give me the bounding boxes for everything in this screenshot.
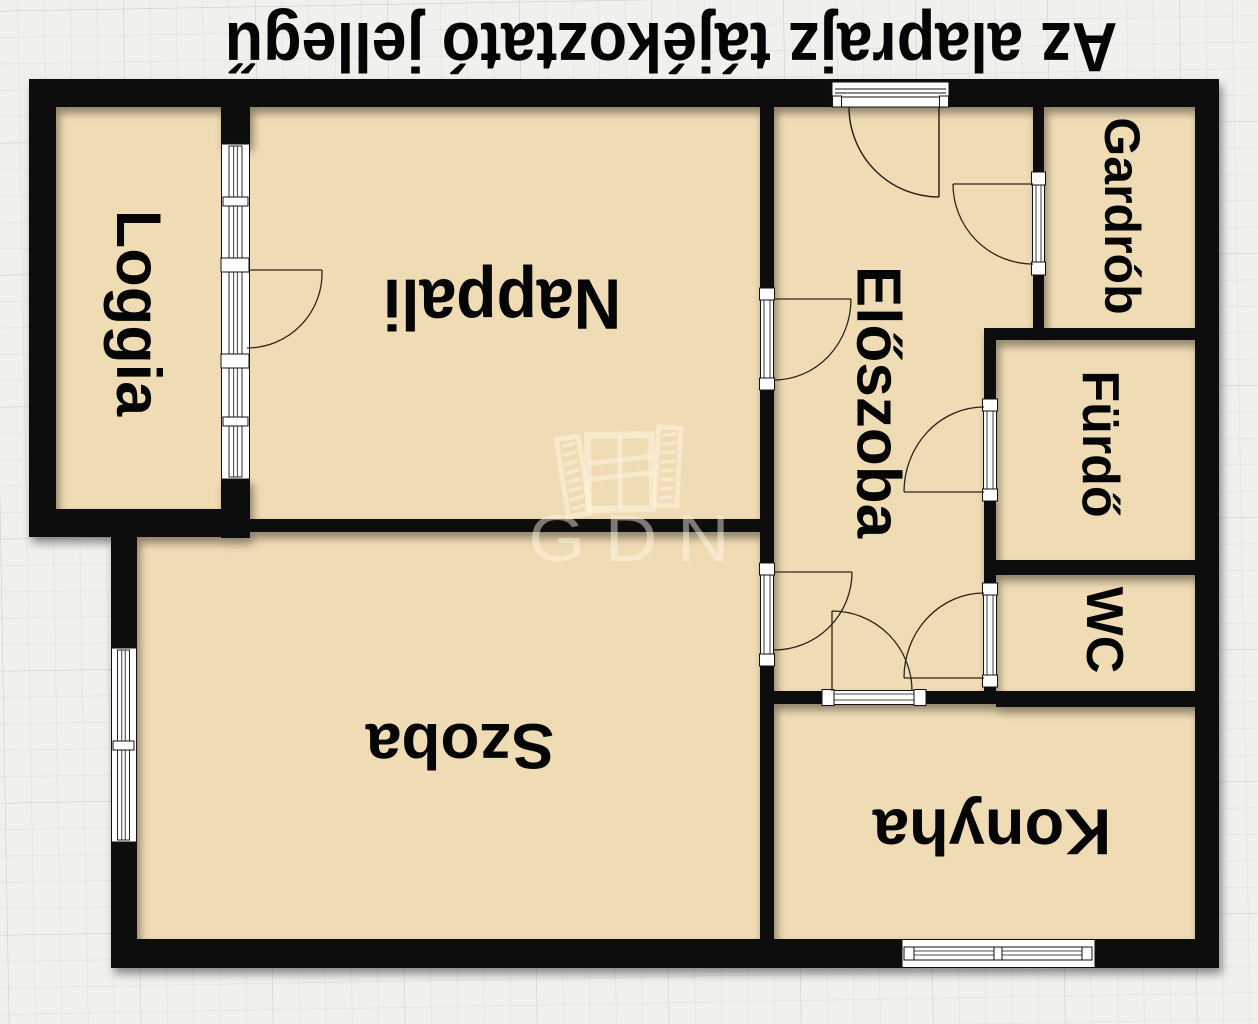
svg-text:WC: WC <box>1075 587 1133 674</box>
svg-text:Loggia: Loggia <box>103 210 173 417</box>
svg-text:Az alaprajz tájékoztató jelleg: Az alaprajz tájékoztató jellegű <box>225 7 1118 84</box>
svg-text:Fürdő: Fürdő <box>1071 370 1129 517</box>
svg-text:GDN: GDN <box>529 501 750 575</box>
svg-text:Szoba: Szoba <box>365 710 554 782</box>
svg-text:Konyha: Konyha <box>872 796 1111 869</box>
svg-text:Gardrób: Gardrób <box>1094 117 1150 314</box>
svg-text:Nappali: Nappali <box>383 264 621 344</box>
svg-text:Előszoba: Előszoba <box>844 266 913 539</box>
